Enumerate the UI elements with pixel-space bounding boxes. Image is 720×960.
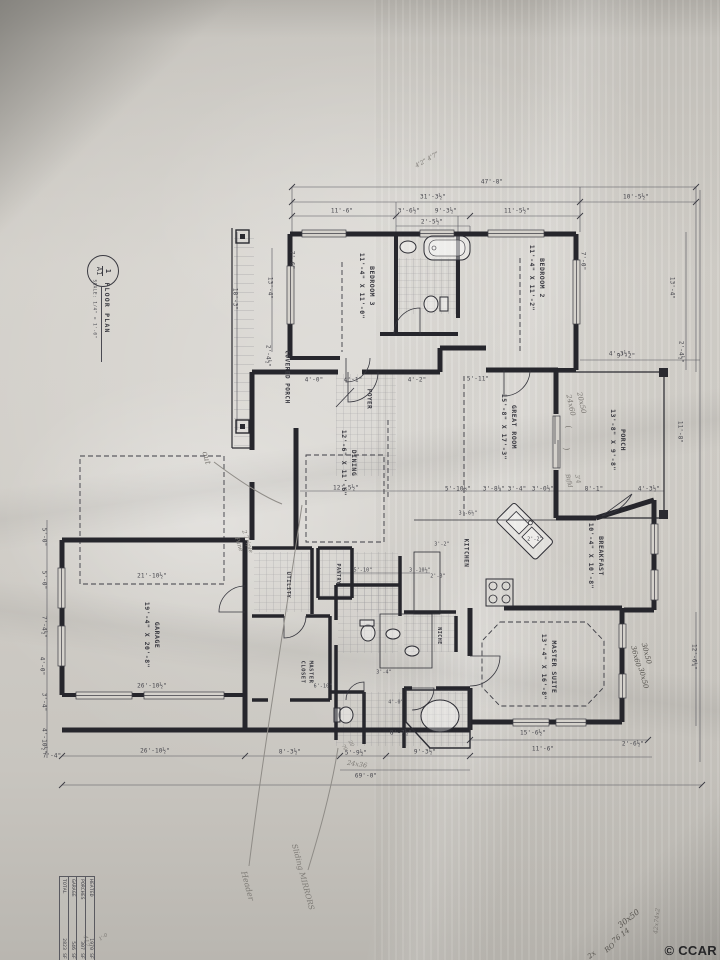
dimension-label: 3'-0½" [532,485,554,494]
fixtures [334,236,556,748]
floorplan-photo: BEDROOM 3 11'-4" X 11'-0"BEDROOM 2 11'-4… [0,0,720,960]
dimension-label: 2'-4½" [677,341,686,363]
room-label: FOYER [365,389,374,410]
area-table-cell: 1970 SF [86,918,94,960]
room-label: PORCH 13'-8" X 9'-8" [607,409,627,471]
area-table: HEATED1970 SFPORCHES307 SFGARAGE546 SFTO… [59,876,95,960]
area-table-cell: 2823 SF [60,918,68,960]
dimension-label: 18'-3" [231,288,240,310]
dimension-lines [47,187,702,785]
dimension-label: 7'-0" [579,252,588,271]
sheet-number: 1 [103,266,112,276]
room-label: COVERED PORCH [283,350,292,403]
paper-texture [0,0,720,960]
dimension-label: 2'-4½" [264,345,273,367]
handwritten-note: 1'-0 [98,932,110,944]
door-swings [219,308,632,710]
dimension-label: 13'-4" [266,277,275,299]
dimension-label: 4'-3½" [609,350,631,359]
dimension-label: 3'-10½" [409,567,431,575]
handwritten-note: 76 14 [610,926,632,947]
dimension-label: 31'-3½" [420,193,446,202]
handwritten-note: RO [602,940,617,955]
dimension-label: 12'-6¼" [690,644,699,670]
handwritten-note: 24x36 [346,759,367,771]
area-table-cell: HEATED [86,877,94,918]
dimension-label: 21'-10½" [137,572,167,581]
room-label: KITCHEN [462,539,471,568]
handwritten-note: 20x50 24x60 [563,391,588,417]
dimension-label: 69'-0" [355,772,377,781]
handwritten-note: 20 70 [339,739,355,752]
plan-labels: BEDROOM 3 11'-4" X 11'-0"BEDROOM 2 11'-4… [0,0,720,960]
area-table-cell: PORCHES [78,877,86,918]
area-table-row: GARAGE546 SF [68,877,77,960]
title-underline [101,286,102,362]
dimension-label: 5'-0" [40,571,49,590]
tile-floors [234,230,468,746]
dimension-label: 3'-4" [40,693,49,712]
handwritten-note: Sliding MIRRORS [289,843,317,912]
dimension-label: 2'-3" [430,573,446,581]
handwritten-note: 4'2" 4'7" [413,150,440,171]
room-label: BEDROOM 3 11'-4" X 11'-0" [356,253,376,319]
floorplan-drawing [0,0,720,960]
handwritten-note: out [198,450,213,466]
dimension-label: 26'-10½" [137,682,167,691]
dimension-label: 12'-5½" [333,484,359,493]
paper-creases [0,0,720,960]
dimension-label: 4'-0" [388,699,404,707]
dimension-label: 13'-4" [668,277,677,299]
dimension-label: 4'-10½" [40,728,49,754]
room-label: MASTER CLOSET [298,661,315,684]
sheet-ref: A1 [95,267,103,275]
handwritten-note: 42x74x2 [651,908,662,935]
paper-corner-shadow [0,0,720,960]
room-label: GARAGE 19'-4" X 20'-8" [141,602,161,668]
room-label: DINING 12'-6" X 11'-6" [338,430,358,496]
dimension-label: 11'-5½" [504,207,530,216]
dashed-lines [80,258,604,706]
handwritten-note: 2x [585,948,598,960]
room-label: UTILITY [284,572,292,599]
dimension-label: 5'-9½" [345,749,367,758]
handwritten-note: 30x50 36x60 [628,642,654,668]
walls [62,234,654,748]
drawing-title: FLOOR PLAN [103,282,111,333]
area-table-cell: 546 SF [69,918,77,960]
ccar-watermark: © CCAR [664,943,717,958]
paper-streaks [374,0,720,960]
dimension-label: 4'-2" [408,376,427,385]
area-table-cell: GARAGE [69,877,77,918]
dimension-label: 5'-10½" [445,485,471,494]
dimension-label: 47'-8" [481,178,503,187]
dimension-label: 5'-10" [354,567,373,575]
handwritten-note: ) [560,446,572,451]
room-label: PANTRY [333,563,341,584]
dimension-label: 3'-8¼" [483,485,505,494]
dimension-label: 11'-6" [331,207,353,216]
dimension-label: 8'-1" [585,485,604,494]
dimension-label: 3'-2" [434,541,450,549]
handwritten-note: Header [237,870,256,902]
area-table-cell: TOTAL [60,877,68,918]
dimension-label: 5'-0" [40,528,49,547]
dimension-label: 8'-7½" [390,729,412,738]
area-table-row: PORCHES307 SF [77,877,86,960]
dimension-label: 3'-6½" [459,510,478,518]
handwritten-note: 30x50 [635,666,651,690]
room-label: MASTER SUITE 13'-4" X 16'-8" [538,634,558,700]
dimension-label: 4'-3½" [638,485,660,494]
dimension-label: 15'-6½" [520,729,546,738]
dimension-label: 6'-10" [314,683,333,691]
dimension-label: 7'-4½" [40,616,49,638]
area-table-row: TOTAL2823 SF [60,877,68,960]
dimension-label: 2'-2" [527,536,543,544]
dimension-label: 4'-0" [305,376,324,385]
room-label: GREAT ROOM 15'-8" X 17'-3" [498,394,518,460]
dimension-label: 5'-11" [467,375,489,384]
dimension-label: 2'-6½" [622,740,644,749]
dimension-ticks [59,184,705,788]
dimension-label: 4'-1" [344,376,363,385]
room-label: NICHE [434,627,442,645]
porch-structure [232,228,668,519]
windows [58,230,658,726]
handwritten-note: ( [562,424,574,429]
handwritten-note: 2 Triple Pane [231,529,255,557]
dimension-label: 7'-6" [288,251,297,270]
dimension-label: 4'-0" [38,657,47,676]
area-table-row: HEATED1970 SF [85,877,94,960]
dimension-label: 9'-3½" [435,207,457,216]
dimension-label: 9'-2" [617,352,636,361]
handwritten-note: 30x50 [616,907,643,932]
dimension-label: 7'-4" [43,752,62,761]
room-label: BREAKFAST 10'-4" X 10'-8" [585,523,605,589]
dimension-label: 11'-6" [532,745,554,754]
dimension-label: 2'-5½" [421,218,443,227]
dimension-label: 8'-3½" [279,748,301,757]
pencil-leaders [214,462,338,870]
room-label: BEDROOM 2 11'-4" X 11'-2" [526,245,546,311]
dimension-label: 10'-5½" [623,193,649,202]
dimension-label: 3'-4" [376,669,392,677]
dimension-label: 3'-4" [508,485,527,494]
dimension-label: 9'-3½" [414,748,436,757]
area-table-cell: 307 SF [78,918,86,960]
drawing-scale: SCALE: 1/4" = 1'-0" [92,279,97,338]
handwritten-note: 3'4 Bifld [563,471,584,489]
dimension-label: 26'-10½" [140,747,170,756]
dimension-label: 3'-6½" [398,207,420,216]
dimension-label: 11'-8" [676,421,685,443]
